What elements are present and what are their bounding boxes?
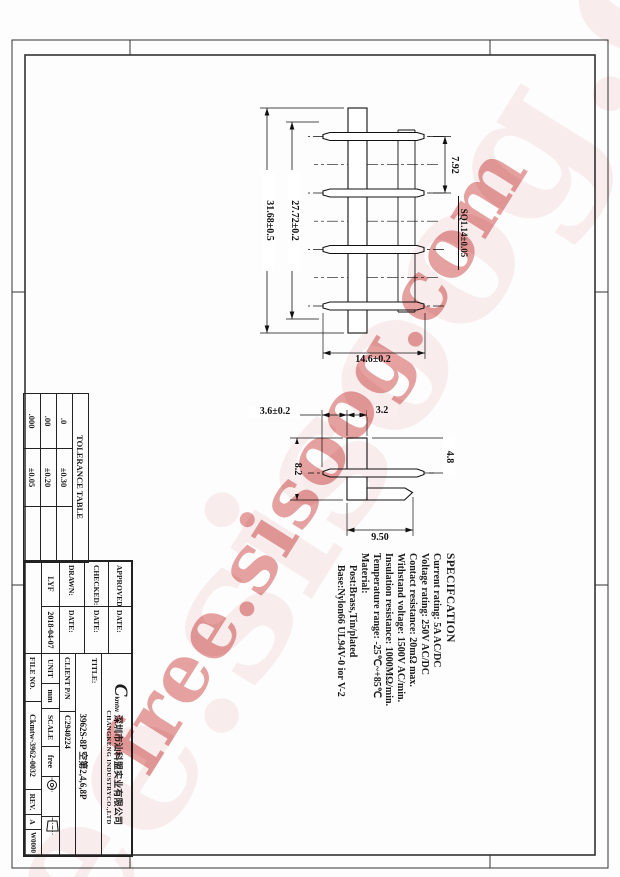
drawing-sheet: 31.68±0.5 27.72±0.2 7.92 SQ1.14±0.05 14.… (0, 0, 620, 877)
scale-value: free (41, 746, 60, 777)
company-banner: C kmtw 深圳市汕科盟实业有限公司 CHANGKENG INDUSTRYCO… (101, 653, 132, 856)
doc-code: W0000 (24, 829, 42, 856)
dim-body-height: 8.2 (291, 444, 303, 494)
spec-line: Withstand voltage: 1500V AC/min. (394, 553, 406, 768)
file-no-label: FILE NO. (24, 653, 42, 702)
third-angle-circle-icon (45, 777, 59, 793)
client-pn-label: CLIENT P/N (59, 653, 76, 712)
rev-label: REV. (24, 789, 42, 815)
dim-pin-square: SQ1.14±0.05 (458, 196, 469, 270)
empty-cell (24, 561, 42, 654)
spec-material-line: Base:Nylon66 UL94V-0 ior V-2 (334, 553, 346, 768)
projection-cone-cell (41, 816, 60, 856)
title-value: 3962S-8P 空第2,4,6,8P (78, 713, 91, 799)
third-angle-cone-icon (46, 817, 59, 835)
dim-body-width: 3.2 (367, 405, 397, 417)
drawn-date-value: 2018-04-07 (41, 606, 60, 654)
tolerance-cell: ±0.05 (24, 449, 40, 507)
approved-date-label: DATE: (108, 606, 132, 654)
tolerance-table-title: TOLERANCE TABLE (72, 394, 88, 560)
company-name-en: CHANGKENG INDUSTRYCO.,LTD (105, 684, 112, 824)
scale-label: SCALE (41, 708, 60, 747)
dim-pin-length: 14.6±0.2 (343, 354, 403, 366)
projection-angle-cell (41, 776, 60, 817)
tolerance-cell-empty (56, 507, 72, 560)
unit-label: UNIT (41, 653, 60, 684)
checked-label: CHECKED: (84, 561, 109, 607)
spec-line: Contact resistance: 20mΩ max. (406, 553, 418, 768)
company-logo-sub: kmtw (113, 696, 119, 711)
spec-line: Insulation resistance: 1000MΩ/min. (382, 553, 394, 768)
title-cell: TITLE: 3962S-8P 空第2,4,6,8P (75, 653, 102, 856)
specification-block: SPECIFCATION Current rating: 5A AC/DC Vo… (334, 553, 456, 768)
spec-material-line: Post:Brass,Tin/plated (346, 553, 358, 768)
dim-tail-length: 9.50 (355, 532, 405, 544)
tolerance-table: TOLERANCE TABLE .0 ±0.30 .00 ±0.20 .000 … (23, 393, 89, 563)
tolerance-cell: ±0.20 (40, 449, 56, 507)
checked-date-label: DATE: (84, 606, 109, 654)
spec-line: Current rating: 5A AC/DC (430, 553, 442, 768)
specification-title: SPECIFCATION (444, 553, 456, 768)
drawn-label: DRAWN: (59, 561, 85, 607)
drawn-date-label: DATE: (59, 606, 85, 654)
dim-pin-offset: 4.8 (443, 437, 455, 477)
tolerance-cell-empty (24, 507, 40, 560)
approved-label: APPROVED: (108, 561, 132, 607)
tolerance-cell: ±0.30 (56, 449, 72, 507)
tolerance-cell: .000 (24, 394, 40, 449)
company-name-cn: 深圳市汕科盟实业有限公司 (112, 715, 125, 825)
title-label: TITLE: (91, 658, 100, 683)
dim-pin-span: 27.72±0.2 (288, 170, 300, 271)
spec-material-title: Material: (358, 553, 370, 768)
dim-pin-pitch: 7.92 (448, 138, 460, 192)
dim-overall-length: 31.68±0.5 (263, 170, 275, 271)
spec-line: Voltage rating: 250V AC/DC (418, 553, 430, 768)
drawn-by-value: LYF (41, 561, 60, 607)
rev-value: A (24, 814, 42, 830)
spec-line: Temperature range: -25℃~+85℃ (370, 553, 382, 768)
tolerance-cell: .0 (56, 394, 72, 449)
unit-value: mm (41, 683, 60, 709)
company-logo: C (112, 684, 128, 697)
drawing-page: 31.68±0.5 27.72±0.2 7.92 SQ1.14±0.05 14.… (0, 0, 620, 877)
client-pn-value: C2940224 (59, 711, 76, 856)
file-no-value: Ckmtw-3962-0032 (24, 701, 42, 790)
title-block: APPROVED: DATE: CHECKED: DATE: DRAWN: DA… (23, 560, 133, 857)
tolerance-cell-empty (40, 507, 56, 560)
dim-tip-length: 3.6±0.2 (250, 406, 300, 418)
tolerance-cell: .00 (40, 394, 56, 449)
company-name-cn-line: C kmtw 深圳市汕科盟实业有限公司 (112, 654, 128, 855)
